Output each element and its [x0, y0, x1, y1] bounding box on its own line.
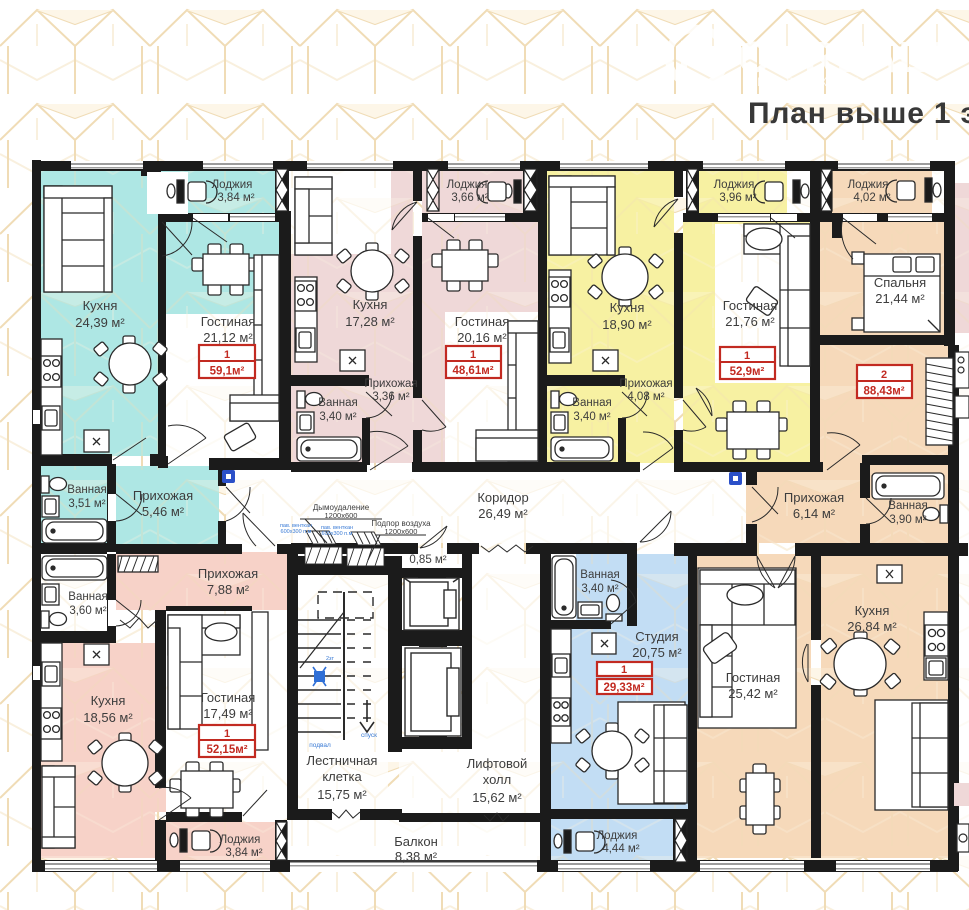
svg-text:2зт: 2зт — [326, 656, 335, 662]
svg-text:15,62 м²: 15,62 м² — [472, 790, 522, 805]
svg-text:Лоджия: Лоджия — [597, 830, 638, 842]
svg-text:52,9м²: 52,9м² — [730, 366, 765, 378]
svg-text:Кухня: Кухня — [855, 603, 890, 618]
svg-text:21,76 м²: 21,76 м² — [725, 314, 775, 329]
svg-text:4,08 м²: 4,08 м² — [627, 391, 664, 403]
svg-text:1: 1 — [470, 349, 476, 361]
svg-text:59,1м²: 59,1м² — [210, 366, 245, 378]
svg-text:Лоджия: Лоджия — [848, 179, 889, 191]
svg-text:НЕДВИЖИМОСТЬ: НЕДВИЖИМОСТЬ — [742, 75, 924, 89]
svg-text:Лоджия: Лоджия — [447, 179, 488, 191]
svg-text:Ванная: Ванная — [318, 397, 357, 409]
svg-text:15,75 м²: 15,75 м² — [317, 787, 367, 802]
svg-text:25,42 м²: 25,42 м² — [728, 686, 778, 701]
svg-text:Кухня: Кухня — [610, 300, 645, 315]
svg-text:1: 1 — [224, 728, 230, 740]
svg-text:26,84 м²: 26,84 м² — [847, 619, 897, 634]
svg-text:1: 1 — [621, 664, 627, 676]
svg-text:2: 2 — [881, 369, 887, 381]
svg-text:29,33м²: 29,33м² — [603, 682, 644, 694]
svg-text:Ванная: Ванная — [67, 484, 106, 496]
svg-text:3,84 м²: 3,84 м² — [217, 192, 254, 204]
svg-text:21,44 м²: 21,44 м² — [875, 291, 925, 306]
svg-text:Студия: Студия — [635, 629, 678, 644]
svg-text:Ванная: Ванная — [572, 397, 611, 409]
svg-text:Ванная: Ванная — [580, 569, 619, 581]
svg-text:3,40 м²: 3,40 м² — [573, 411, 610, 423]
svg-text:1: 1 — [224, 349, 230, 361]
svg-text:Гостиная: Гостиная — [723, 298, 778, 313]
svg-text:1: 1 — [744, 350, 750, 362]
svg-text:Коридор: Коридор — [477, 490, 528, 505]
svg-text:3,51 м²: 3,51 м² — [68, 498, 105, 510]
svg-text:Кухня: Кухня — [83, 298, 118, 313]
svg-text:1200х600: 1200х600 — [385, 527, 418, 536]
svg-text:Балкон: Балкон — [394, 834, 438, 849]
svg-text:Прихожая: Прихожая — [133, 488, 193, 503]
svg-text:3,40 м²: 3,40 м² — [581, 583, 618, 595]
svg-text:1200х600: 1200х600 — [325, 511, 358, 520]
svg-text:4,44 м²: 4,44 м² — [602, 843, 639, 855]
svg-text:3,40 м²: 3,40 м² — [319, 411, 356, 423]
svg-text:5,46 м²: 5,46 м² — [142, 504, 185, 519]
svg-text:клетка: клетка — [322, 769, 362, 784]
svg-text:3,90 м²: 3,90 м² — [889, 514, 926, 526]
svg-text:Спальня: Спальня — [874, 275, 926, 290]
svg-text:Прихожая: Прихожая — [364, 378, 417, 390]
svg-text:17,49 м²: 17,49 м² — [203, 706, 253, 721]
svg-text:4,02 м²: 4,02 м² — [853, 192, 890, 204]
svg-text:подвал: подвал — [309, 742, 331, 749]
svg-text:6,14 м²: 6,14 м² — [793, 506, 836, 521]
svg-text:8,38 м²: 8,38 м² — [395, 849, 438, 864]
svg-text:Прихожая: Прихожая — [198, 566, 258, 581]
svg-text:21,12 м²: 21,12 м² — [203, 330, 253, 345]
svg-text:холл: холл — [483, 772, 511, 787]
svg-text:26,49 м²: 26,49 м² — [478, 506, 528, 521]
svg-text:52,15м²: 52,15м² — [206, 744, 247, 756]
svg-text:7,88 м²: 7,88 м² — [207, 582, 250, 597]
svg-text:Лоджия: Лоджия — [714, 179, 755, 191]
svg-text:Кухня: Кухня — [91, 693, 126, 708]
svg-text:3,36 м²: 3,36 м² — [372, 391, 409, 403]
svg-text:Гостиная: Гостиная — [201, 314, 256, 329]
svg-text:Гостиная: Гостиная — [201, 690, 256, 705]
svg-text:Гостиная: Гостиная — [726, 670, 781, 685]
svg-text:3,96 м²: 3,96 м² — [719, 192, 756, 204]
svg-text:24,39 м²: 24,39 м² — [75, 315, 125, 330]
svg-text:Прихожая: Прихожая — [784, 490, 844, 505]
svg-text:Гостиная: Гостиная — [455, 314, 510, 329]
svg-text:План выше 1 этажа: План выше 1 этажа — [748, 97, 969, 130]
svg-text:Ванная: Ванная — [888, 500, 927, 512]
svg-text:3,60 м²: 3,60 м² — [69, 605, 106, 617]
svg-text:48,61м²: 48,61м² — [452, 365, 493, 377]
svg-text:3,66 м²: 3,66 м² — [451, 192, 488, 204]
svg-text:20,16 м²: 20,16 м² — [457, 330, 507, 345]
svg-text:0,85 м²: 0,85 м² — [409, 554, 446, 566]
svg-text:3,84 м²: 3,84 м² — [225, 847, 262, 859]
svg-text:600х300 п.м: 600х300 п.м — [281, 529, 312, 535]
svg-text:Лестничная: Лестничная — [307, 753, 378, 768]
svg-text:Лоджия: Лоджия — [220, 834, 261, 846]
svg-text:Кухня: Кухня — [353, 297, 388, 312]
svg-text:88,43м²: 88,43м² — [863, 386, 904, 398]
svg-text:Лоджия: Лоджия — [212, 179, 253, 191]
svg-text:спуск: спуск — [361, 732, 377, 739]
svg-text:Прихожая: Прихожая — [619, 378, 672, 390]
svg-text:20,75 м²: 20,75 м² — [632, 645, 682, 660]
svg-text:600х300 п.м: 600х300 п.м — [322, 531, 353, 537]
svg-text:17,28 м²: 17,28 м² — [345, 314, 395, 329]
svg-text:Лифтовой: Лифтовой — [467, 756, 528, 771]
svg-text:Ванная: Ванная — [68, 591, 107, 603]
svg-text:18,90 м²: 18,90 м² — [602, 317, 652, 332]
svg-text:18,56 м²: 18,56 м² — [83, 710, 133, 725]
